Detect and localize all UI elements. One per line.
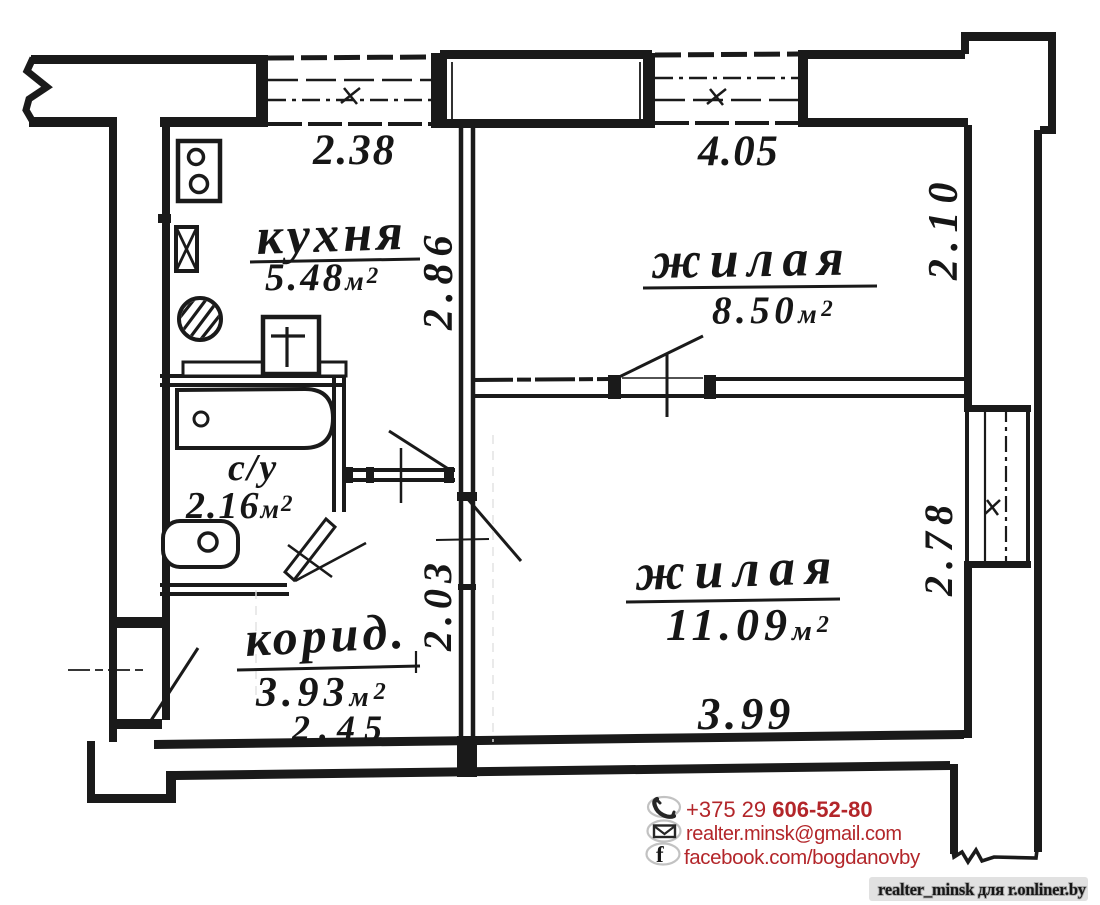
svg-text:2.86: 2.86 — [416, 229, 462, 332]
svg-text:4.05: 4.05 — [697, 128, 779, 175]
svg-text:2.38: 2.38 — [312, 127, 396, 174]
svg-text:2.78: 2.78 — [916, 498, 961, 597]
svg-text:2.10: 2.10 — [921, 175, 967, 282]
svg-text:facebook.com/bogdanovby: facebook.com/bogdanovby — [684, 846, 921, 869]
svg-text:realter_minsk для r.onliner.by: realter_minsk для r.onliner.by — [878, 880, 1087, 899]
svg-text:2.03: 2.03 — [415, 557, 460, 652]
svg-text:с/у: с/у — [228, 447, 278, 489]
svg-text:жилая: жилая — [650, 230, 852, 291]
svg-text:2.45: 2.45 — [291, 708, 391, 748]
svg-text:f: f — [656, 842, 664, 867]
svg-text:realter.minsk@gmail.com: realter.minsk@gmail.com — [686, 823, 902, 845]
svg-text:корид.: корид. — [244, 603, 409, 667]
svg-text:+375 29 606-52-80: +375 29 606-52-80 — [686, 797, 873, 822]
svg-text:3.99: 3.99 — [697, 689, 795, 739]
svg-text:жилая: жилая — [633, 538, 841, 602]
